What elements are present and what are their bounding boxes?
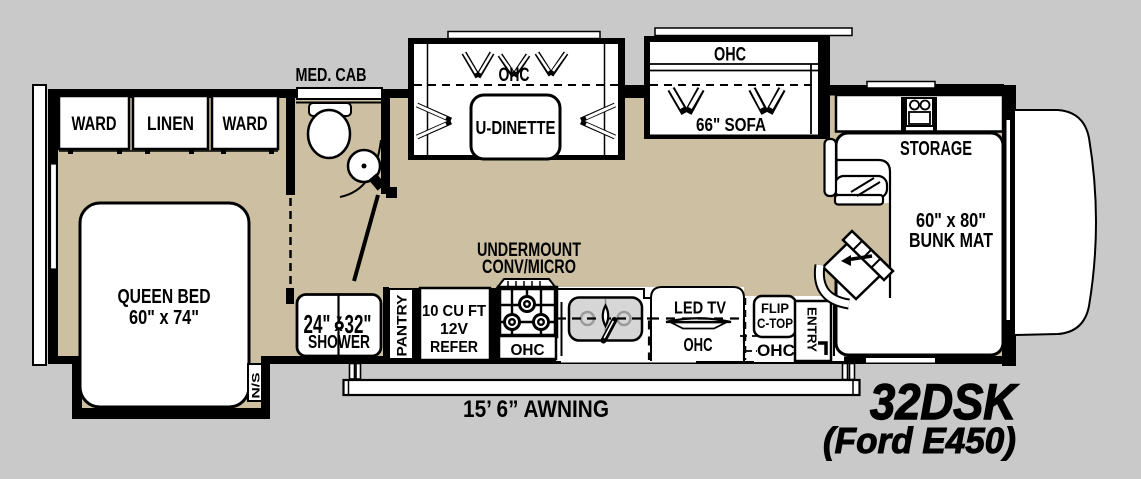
svg-text:U-DINETTE: U-DINETTE <box>476 118 556 138</box>
svg-text:LED TV: LED TV <box>674 298 726 318</box>
svg-text:C-TOP: C-TOP <box>757 316 793 331</box>
svg-text:LINEN: LINEN <box>147 114 194 135</box>
svg-text:10 CU FT: 10 CU FT <box>422 303 486 320</box>
svg-text:BUNK MAT: BUNK MAT <box>909 230 993 252</box>
svg-text:MED. CAB: MED. CAB <box>296 65 367 85</box>
svg-text:60" x 80": 60" x 80" <box>916 210 986 232</box>
svg-text:WARD: WARD <box>72 114 117 135</box>
svg-text:12V: 12V <box>440 321 468 338</box>
svg-text:OHC: OHC <box>499 65 530 86</box>
svg-text:OHC: OHC <box>684 334 713 355</box>
svg-text:PANTRY: PANTRY <box>394 294 410 357</box>
svg-text:SHOWER: SHOWER <box>308 331 370 352</box>
svg-text:ENTRY: ENTRY <box>805 307 819 353</box>
svg-text:OHC: OHC <box>714 45 746 66</box>
svg-text:REFER: REFER <box>430 339 478 356</box>
svg-text:60" x 74": 60" x 74" <box>129 307 199 329</box>
svg-text:CONV/MICRO: CONV/MICRO <box>482 257 576 278</box>
svg-text:STORAGE: STORAGE <box>900 138 972 160</box>
svg-text:15’ 6” AWNING: 15’ 6” AWNING <box>463 396 609 423</box>
svg-text:WARD: WARD <box>223 114 268 135</box>
svg-text:(Ford E450): (Ford E450) <box>823 420 1016 461</box>
svg-text:FLIP: FLIP <box>761 301 789 316</box>
svg-text:OHC: OHC <box>757 342 795 360</box>
svg-text:66" SOFA: 66" SOFA <box>696 114 766 135</box>
svg-text:QUEEN BED: QUEEN BED <box>118 286 211 308</box>
svg-text:N/S: N/S <box>251 373 263 399</box>
svg-text:OHC: OHC <box>511 342 545 359</box>
